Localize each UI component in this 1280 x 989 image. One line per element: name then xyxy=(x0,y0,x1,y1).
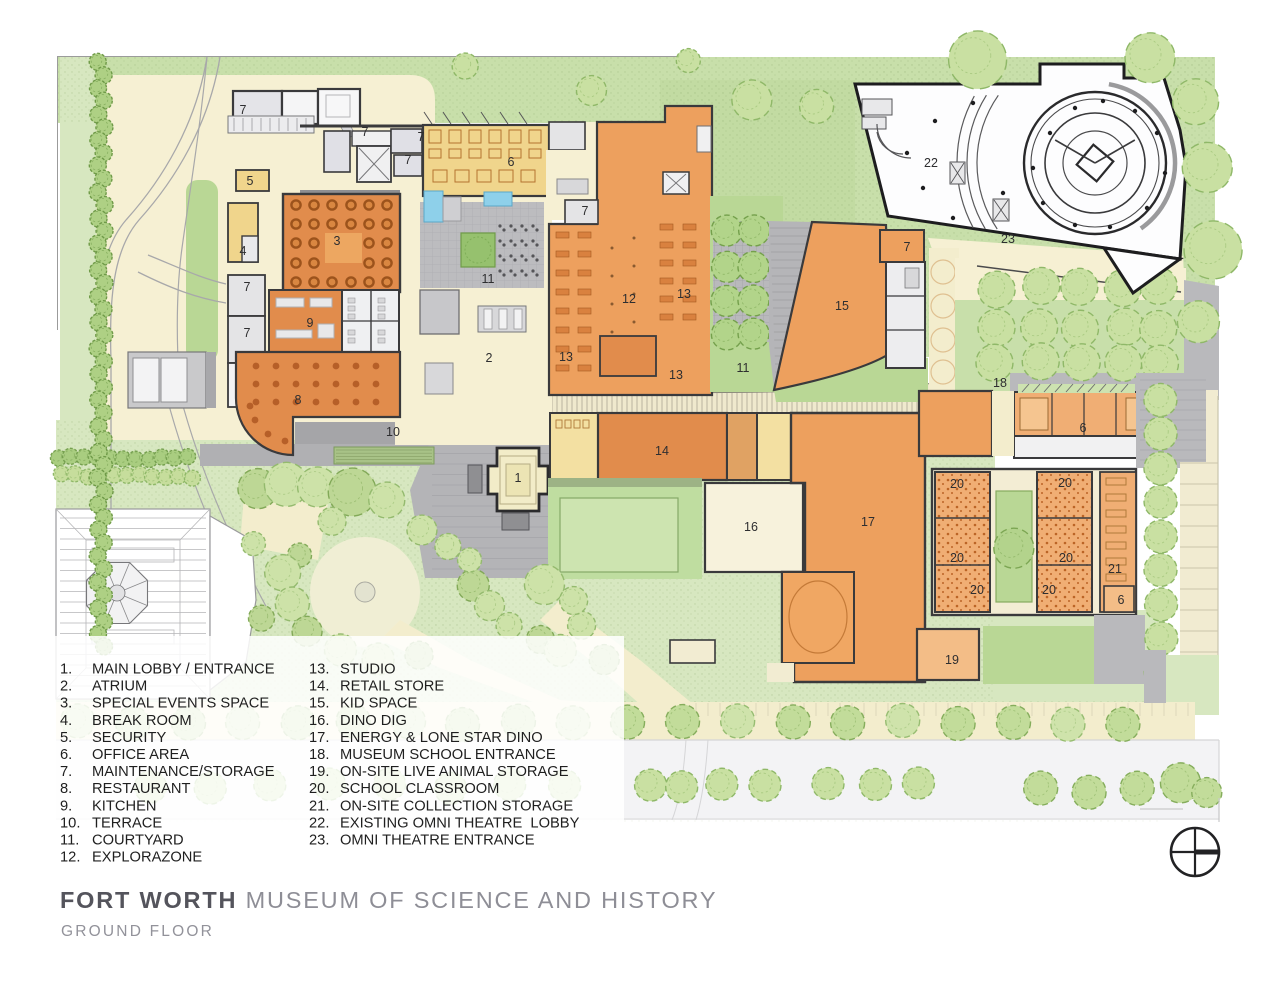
svg-text:13: 13 xyxy=(559,350,573,364)
svg-text:15.: 15. xyxy=(309,696,329,712)
svg-text:14: 14 xyxy=(655,444,669,458)
svg-text:ON-SITE LIVE ANIMAL STORAGE: ON-SITE LIVE ANIMAL STORAGE xyxy=(340,764,569,780)
svg-text:KITCHEN: KITCHEN xyxy=(92,798,156,814)
svg-text:2: 2 xyxy=(486,351,493,365)
svg-text:7: 7 xyxy=(418,130,425,144)
svg-text:12.: 12. xyxy=(60,850,80,866)
svg-text:GROUND FLOOR: GROUND FLOOR xyxy=(61,923,214,940)
svg-text:6: 6 xyxy=(1118,593,1125,607)
svg-text:23: 23 xyxy=(1001,232,1015,246)
svg-text:DINO DIG: DINO DIG xyxy=(340,713,407,729)
svg-text:7.: 7. xyxy=(60,764,72,780)
svg-text:3.: 3. xyxy=(60,696,72,712)
svg-text:16: 16 xyxy=(744,520,758,534)
svg-text:19.: 19. xyxy=(309,764,329,780)
svg-text:15: 15 xyxy=(835,299,849,313)
svg-text:1.: 1. xyxy=(60,662,72,678)
svg-text:22: 22 xyxy=(924,156,938,170)
svg-text:3: 3 xyxy=(334,234,341,248)
svg-text:7: 7 xyxy=(904,240,911,254)
svg-text:SPECIAL EVENTS SPACE: SPECIAL EVENTS SPACE xyxy=(92,696,269,712)
svg-text:7: 7 xyxy=(244,280,251,294)
svg-text:4: 4 xyxy=(240,244,247,258)
svg-text:2.: 2. xyxy=(60,679,72,695)
svg-text:18.: 18. xyxy=(309,747,329,763)
svg-text:7: 7 xyxy=(362,125,369,139)
svg-text:20: 20 xyxy=(970,583,984,597)
svg-text:18: 18 xyxy=(993,376,1007,390)
svg-text:7: 7 xyxy=(405,153,412,167)
svg-text:21.: 21. xyxy=(309,798,329,814)
svg-text:ON-SITE COLLECTION STORAGE: ON-SITE COLLECTION STORAGE xyxy=(340,798,573,814)
svg-text:MUSEUM SCHOOL ENTRANCE: MUSEUM SCHOOL ENTRANCE xyxy=(340,747,556,763)
svg-text:KID SPACE: KID SPACE xyxy=(340,696,417,712)
svg-text:5: 5 xyxy=(247,174,254,188)
svg-text:4.: 4. xyxy=(60,713,72,729)
svg-text:SCHOOL CLASSROOM: SCHOOL CLASSROOM xyxy=(340,781,499,797)
svg-text:FORT WORTH MUSEUM OF SCIENCE A: FORT WORTH MUSEUM OF SCIENCE AND HISTORY xyxy=(60,887,717,913)
svg-text:MAINTENANCE/STORAGE: MAINTENANCE/STORAGE xyxy=(92,764,275,780)
svg-text:7: 7 xyxy=(582,204,589,218)
svg-text:13: 13 xyxy=(677,287,691,301)
svg-text:20.: 20. xyxy=(309,781,329,797)
svg-text:ENERGY & LONE STAR DINO: ENERGY & LONE STAR DINO xyxy=(340,730,543,746)
svg-text:11: 11 xyxy=(482,272,495,286)
svg-text:20: 20 xyxy=(950,477,964,491)
svg-text:6: 6 xyxy=(508,155,515,169)
svg-text:6.: 6. xyxy=(60,747,72,763)
svg-text:20: 20 xyxy=(950,551,964,565)
svg-text:19: 19 xyxy=(945,653,959,667)
svg-text:21: 21 xyxy=(1108,562,1122,576)
svg-text:6: 6 xyxy=(1080,421,1087,435)
svg-text:EXISTING OMNI THEATRE LOBBY: EXISTING OMNI THEATRE LOBBY xyxy=(340,815,580,831)
svg-text:17.: 17. xyxy=(309,730,329,746)
svg-text:8.: 8. xyxy=(60,781,72,797)
svg-text:MAIN LOBBY / ENTRANCE: MAIN LOBBY / ENTRANCE xyxy=(92,662,275,678)
svg-text:22.: 22. xyxy=(309,815,329,831)
svg-text:SECURITY: SECURITY xyxy=(92,730,166,746)
svg-text:13: 13 xyxy=(669,368,683,382)
svg-text:10: 10 xyxy=(386,425,400,439)
svg-text:20: 20 xyxy=(1059,551,1073,565)
svg-text:OMNI THEATRE ENTRANCE: OMNI THEATRE ENTRANCE xyxy=(340,833,535,849)
svg-text:TERRACE: TERRACE xyxy=(92,815,162,831)
svg-text:12: 12 xyxy=(622,292,636,306)
svg-text:13.: 13. xyxy=(309,662,329,678)
svg-text:1: 1 xyxy=(515,471,522,485)
svg-text:COURTYARD: COURTYARD xyxy=(92,833,184,849)
svg-text:EXPLORAZONE: EXPLORAZONE xyxy=(92,850,202,866)
svg-text:OFFICE AREA: OFFICE AREA xyxy=(92,747,189,763)
svg-text:10.: 10. xyxy=(60,815,80,831)
svg-text:23.: 23. xyxy=(309,833,329,849)
svg-text:17: 17 xyxy=(861,515,875,529)
svg-text:14.: 14. xyxy=(309,679,329,695)
svg-text:ATRIUM: ATRIUM xyxy=(92,679,147,695)
svg-text:STUDIO: STUDIO xyxy=(340,662,396,678)
svg-text:7: 7 xyxy=(240,103,247,117)
svg-text:RETAIL STORE: RETAIL STORE xyxy=(340,679,444,695)
svg-text:9.: 9. xyxy=(60,798,72,814)
svg-text:BREAK ROOM: BREAK ROOM xyxy=(92,713,192,729)
svg-text:7: 7 xyxy=(244,326,251,340)
svg-text:RESTAURANT: RESTAURANT xyxy=(92,781,190,797)
svg-text:11: 11 xyxy=(737,361,750,375)
svg-text:9: 9 xyxy=(307,316,314,330)
svg-text:8: 8 xyxy=(295,393,302,407)
svg-text:5.: 5. xyxy=(60,730,72,746)
svg-text:20: 20 xyxy=(1058,476,1072,490)
svg-text:20: 20 xyxy=(1042,583,1056,597)
svg-text:16.: 16. xyxy=(309,713,329,729)
svg-text:11.: 11. xyxy=(60,833,79,849)
